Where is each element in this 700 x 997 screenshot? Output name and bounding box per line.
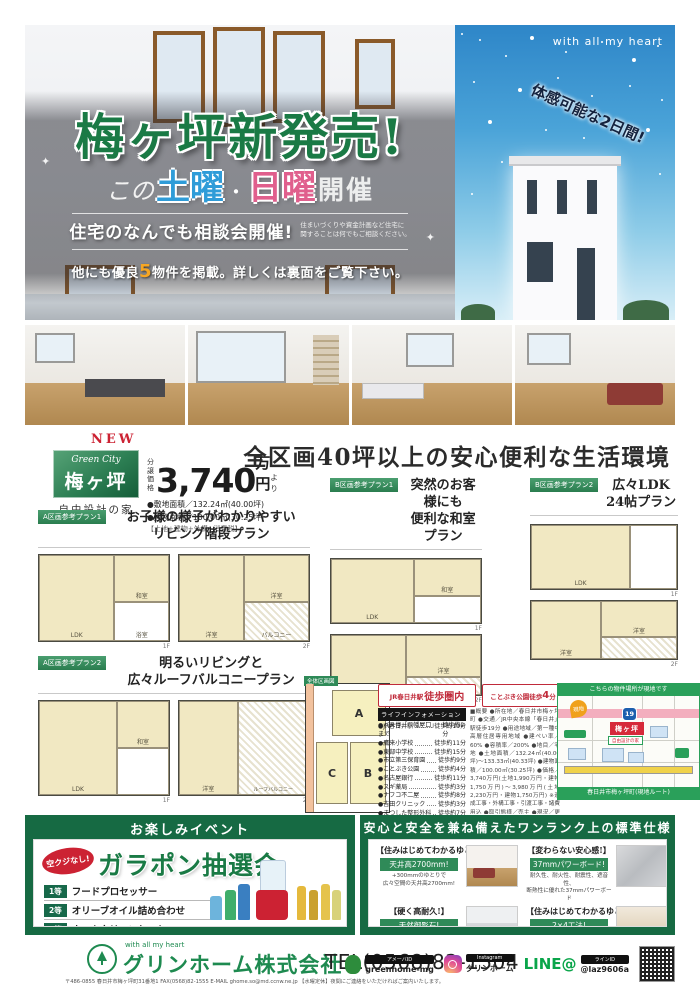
prize-rank: 2等 bbox=[44, 904, 67, 917]
station-access-badge: JR春日井駅 徒歩圏内 bbox=[378, 684, 476, 707]
floor-tag: 2F bbox=[178, 643, 310, 650]
place: ●スギ薬局 bbox=[378, 782, 407, 791]
room bbox=[414, 596, 482, 623]
section-headline: 全区画40坪以上の安心便利な生活環境 bbox=[237, 438, 677, 472]
floorplan-1f: LDK bbox=[530, 524, 678, 590]
room: LDK bbox=[39, 701, 117, 795]
spec-photo-stairs bbox=[616, 906, 667, 927]
room: 和室 bbox=[117, 701, 169, 748]
sns-row: アメーバID greenhome-mg Instagram グリンホーム LIN… bbox=[345, 946, 675, 982]
experience-days-badge: 体感可能な2日間! bbox=[528, 79, 648, 148]
event-panel: お楽しみイベント 空クジなし! ガラポン抽選会 1等 フードプロセッサー 2等 … bbox=[25, 815, 355, 935]
blender-base bbox=[256, 890, 288, 920]
park-minutes: 4 bbox=[542, 690, 549, 701]
line-id: @laz9606a bbox=[581, 965, 629, 974]
prize-item: フードプロセッサー bbox=[72, 884, 158, 898]
place: ●ナフコ不二屋 bbox=[378, 790, 419, 799]
room: LDK bbox=[531, 525, 630, 589]
spec-photo-board bbox=[616, 845, 667, 887]
hero-overlay: ✦ ✦ 梅ヶ坪新発売! この 土曜 ・ 日曜 開催 住宅のなんでも相談会開催! … bbox=[25, 91, 455, 303]
floor-tag: 1F bbox=[530, 591, 678, 598]
park-name: ことぶき公園徒歩 bbox=[490, 691, 542, 701]
instagram-icon bbox=[444, 955, 462, 973]
spec-title: 【住みはじめてわかるゆとり】 bbox=[376, 845, 462, 856]
floor-tag: 1F bbox=[38, 643, 170, 650]
house-door bbox=[577, 248, 595, 320]
road-strip bbox=[306, 684, 314, 812]
floor-wrap: 洋室 洋室 バルコニー 2F bbox=[178, 554, 310, 650]
new-label: NEW bbox=[91, 432, 136, 447]
room bbox=[630, 525, 677, 589]
spec-desc: +300mmのゆとりで 広々空間の天井高2700mm! bbox=[376, 873, 462, 888]
price-more: より bbox=[270, 472, 278, 494]
room: 洋室 bbox=[406, 635, 481, 677]
plan-tag: B区画参考プラン2 bbox=[530, 478, 598, 492]
more-properties-line: 他にも優良5物件を掲載。詳しくは裏面をご覧下さい。 bbox=[71, 261, 408, 282]
bottle-illustration bbox=[332, 890, 341, 920]
park-minutes-unit: 分 bbox=[549, 691, 556, 701]
plan-a2: A区画参考プラン2 明るいリビングと 広々ルーフバルコニープラン LDK 和室 … bbox=[38, 656, 310, 804]
photo-strip bbox=[25, 325, 675, 425]
walk-range: 徒歩圏内 bbox=[424, 688, 464, 703]
area-map: こちらの物件場所が現地です 19 現地 梅ヶ坪 自由設計の家 春日井市梅ヶ坪町(… bbox=[557, 683, 700, 800]
place: ●東部中学校 bbox=[378, 747, 413, 756]
map-block bbox=[628, 752, 644, 763]
spec-item-granite: 【硬く高耐久!】 天然御影石! 天然御影石 システムキッチン! bbox=[376, 906, 518, 927]
sofa-shape bbox=[473, 868, 495, 878]
prize-item: ホームクリーンセット bbox=[72, 922, 166, 927]
green-city-badge: Green City 梅ヶ坪 bbox=[53, 450, 139, 498]
prize-row: 2等 オリーブオイル詰め合わせ bbox=[44, 901, 222, 920]
leader bbox=[421, 797, 436, 798]
land-area: ●敷地面積／132.24㎡(40.00坪) bbox=[147, 499, 272, 510]
spec-title: 【硬く高耐久!】 bbox=[376, 906, 462, 917]
window-shape bbox=[527, 333, 571, 365]
room: 洋室 bbox=[244, 555, 309, 602]
property-overview: ■概要 ●所在地／春日井市梅ヶ坪町 ●交通／JR中央本線「春日井」駅徒歩19分 … bbox=[470, 708, 560, 814]
line-info: ラインID @laz9606a bbox=[581, 955, 629, 974]
site-label: 梅ヶ坪 bbox=[610, 722, 644, 735]
footer: with all my heart グリンホーム株式会社 TEL(0568)82… bbox=[25, 940, 675, 992]
lot-c: C bbox=[316, 742, 348, 804]
spec-item-2x4: 【住みはじめてわかるゆとり】 2×4工法! 火災、地震に強い 2×4工法! bbox=[526, 906, 667, 927]
leader bbox=[427, 805, 436, 806]
plan-caption-line1: お子様の様子がわかりやすい bbox=[127, 510, 296, 525]
map-block bbox=[650, 726, 668, 738]
list-item: ●市立第三保育園徒歩約9分 bbox=[378, 756, 466, 765]
spec-item-ceiling: 【住みはじめてわかるゆとり】 天井高2700mm! +300mmのゆとりで 広々… bbox=[376, 845, 518, 903]
room: 洋室 bbox=[179, 701, 238, 795]
time: 徒歩約8分 bbox=[438, 790, 466, 799]
spec-item-powerboard: 【変わらない安心感!】 37mmパワーボード! 耐久性、耐火性、耐震性、遮音性、… bbox=[526, 845, 667, 903]
footer-tagline: with all my heart bbox=[125, 941, 184, 949]
floor-wrap: LDK 和室 浴室 1F bbox=[38, 554, 170, 650]
window-shape bbox=[196, 331, 286, 383]
place: ●名古屋銀行 bbox=[378, 773, 413, 782]
hero-subtitle: この 土曜 ・ 日曜 開催 bbox=[106, 170, 374, 207]
plan-caption: お子様の様子がわかりやすい リビング階段プラン bbox=[112, 510, 310, 544]
station-name: JR春日井駅 bbox=[390, 691, 423, 701]
room: LDK bbox=[39, 555, 114, 641]
hero-sky-photo: with all my heart 体感可能な2日間! bbox=[455, 25, 675, 320]
prize-list: 1等 フードプロセッサー 2等 オリーブオイル詰め合わせ 3等 ホームクリーンセ… bbox=[44, 882, 222, 927]
plan-a2-header: A区画参考プラン2 明るいリビングと 広々ルーフバルコニープラン bbox=[38, 656, 310, 694]
flyer-page: with all my heart 体感可能な2日間! ✦ ✦ 梅ヶ坪新発売! … bbox=[0, 0, 700, 997]
bottle-illustration bbox=[210, 896, 222, 920]
main-road bbox=[564, 766, 693, 774]
badge-name: 梅ヶ坪 bbox=[53, 467, 139, 494]
time: 徒歩約11分 bbox=[434, 738, 466, 747]
floor-tag: 2F bbox=[178, 797, 310, 804]
house-window bbox=[557, 180, 567, 214]
list-item: ●スギ薬局徒歩約3分 bbox=[378, 782, 466, 791]
leader bbox=[427, 762, 436, 763]
consult-note-line2: 関することは何でもご相談ください。 bbox=[300, 230, 411, 238]
instagram-block: Instagram グリンホーム bbox=[444, 954, 514, 974]
sparkle-icon: ✦ bbox=[426, 231, 435, 244]
room: バルコニー bbox=[244, 602, 309, 641]
map-landmark bbox=[675, 748, 689, 758]
map-block bbox=[568, 748, 586, 760]
divider bbox=[72, 213, 407, 214]
spec-feature-bar: 天井高2700mm! bbox=[380, 858, 458, 871]
time: 徒歩約2分 bbox=[442, 720, 466, 738]
plan-caption-line2: 24帖プラン bbox=[606, 495, 676, 510]
plan-caption: 広々LDK 24帖プラン bbox=[604, 478, 678, 512]
plan-b2: B区画参考プラン2 広々LDK 24帖プラン LDK 1F 洋室 洋室 2F bbox=[530, 478, 678, 668]
ameba-icon bbox=[345, 955, 361, 974]
prize-row: 1等 フードプロセッサー bbox=[44, 882, 222, 901]
plan-a1-drawings: LDK 和室 浴室 1F 洋室 洋室 バルコニー 2F bbox=[38, 554, 310, 650]
ameba-info: アメーバID greenhome-mg bbox=[365, 955, 434, 974]
life-info-title: ライフインフォメーション bbox=[378, 708, 466, 721]
hero-title: 梅ヶ坪新発売! bbox=[75, 113, 405, 162]
counter-shape bbox=[85, 379, 165, 397]
price-label-1: 分譲 bbox=[147, 458, 154, 474]
bush-shape bbox=[623, 300, 669, 320]
company-name: グリンホーム株式会社 bbox=[123, 949, 342, 979]
room: LDK bbox=[331, 559, 414, 623]
plan-caption-line2: 便利な和室プラン bbox=[411, 512, 476, 544]
life-information: ライフインフォメーション ●JR春日井駅徒歩約19分 ●バス停「八幡屋口」まで徒… bbox=[378, 708, 466, 817]
floor-wrap: 洋室 ルーフバルコニー 2F bbox=[178, 700, 310, 804]
time: 徒歩約3分 bbox=[438, 799, 466, 808]
map-body: 19 現地 梅ヶ坪 自由設計の家 bbox=[558, 696, 699, 787]
house-roof bbox=[509, 156, 621, 166]
place: ●市立第三保育園 bbox=[378, 755, 425, 764]
photo-living-stairs bbox=[188, 325, 348, 425]
floor-tag: 1F bbox=[38, 797, 170, 804]
time: 徒歩約15分 bbox=[434, 747, 466, 756]
floorplan-1f: LDK 和室 bbox=[330, 558, 482, 624]
blender-illustration bbox=[256, 860, 288, 920]
instagram-badge: Instagram bbox=[466, 954, 514, 962]
place: ●鷹来小学校 bbox=[378, 738, 413, 747]
list-item: ●バス停「八幡屋口」まで徒歩約2分 bbox=[378, 730, 466, 739]
company-logo-icon bbox=[87, 944, 117, 974]
leader bbox=[415, 753, 432, 754]
house-window bbox=[527, 180, 537, 214]
room: 洋室 bbox=[179, 555, 244, 641]
plan-caption: 突然のお客様にも 便利な和室プラン bbox=[404, 478, 482, 546]
room: ルーフバルコニー bbox=[238, 701, 310, 795]
window-shape bbox=[406, 333, 454, 367]
spec-title: 【住みはじめてわかるゆとり】 bbox=[526, 906, 612, 917]
subtitle-suffix: 開催 bbox=[318, 170, 374, 207]
prize-row: 3等 ホームクリーンセット bbox=[44, 920, 222, 927]
spec-text: 【硬く高耐久!】 天然御影石! 天然御影石 システムキッチン! bbox=[376, 906, 462, 927]
time: 徒歩約9分 bbox=[438, 755, 466, 764]
model-house bbox=[513, 162, 617, 320]
stairs-shape bbox=[313, 335, 339, 385]
leader bbox=[409, 788, 436, 789]
room: 和室 bbox=[114, 555, 169, 602]
bottle-illustration bbox=[238, 884, 250, 920]
spec-photo-living bbox=[466, 845, 518, 887]
spec-feature-bar: 天然御影石! bbox=[380, 919, 458, 927]
list-item: ●吉田クリニック徒歩約3分 bbox=[378, 799, 466, 808]
brand-tagline: with all my heart bbox=[553, 35, 663, 48]
line-logo: LINE@ bbox=[524, 955, 577, 973]
floor-wrap: LDK 和室 1F bbox=[38, 700, 170, 804]
consult-title: 住宅のなんでも相談会開催! bbox=[69, 218, 293, 243]
ameba-id: greenhome-mg bbox=[365, 965, 434, 974]
house-window bbox=[587, 180, 597, 214]
specs-box: 【住みはじめてわかるゆとり】 天井高2700mm! +300mmのゆとりで 広々… bbox=[368, 839, 667, 927]
map-header: こちらの物件場所が現地です bbox=[558, 684, 699, 696]
more-pre: 他にも優良 bbox=[71, 266, 139, 281]
house-window bbox=[527, 242, 553, 282]
plan-b1-header: B区画参考プラン1 突然のお客様にも 便利な和室プラン bbox=[330, 478, 482, 550]
plan-tag: A区画参考プラン2 bbox=[38, 656, 106, 670]
specs-panel: 安心と安全を兼ね備えたワンランク上の標準仕様 【住みはじめてわかるゆとり】 天井… bbox=[360, 815, 675, 935]
route-shield-icon: 19 bbox=[622, 707, 637, 721]
room: 洋室 bbox=[601, 601, 677, 637]
spec-desc: 耐久性、耐火性、耐震性、遮音性、 断熱性に優れた37mmパワーボード bbox=[526, 873, 612, 903]
no-blank-badge: 空クジなし! bbox=[40, 845, 95, 878]
line-block: LINE@ ラインID @laz9606a bbox=[524, 955, 629, 974]
spec-desc-line1: 耐久性、耐火性、耐震性、遮音性、 bbox=[530, 873, 608, 887]
prize-item: オリーブオイル詰め合わせ bbox=[72, 903, 185, 917]
prize-rank: 1等 bbox=[44, 885, 67, 898]
floorplan-2f: 洋室 ルーフバルコニー bbox=[178, 700, 310, 796]
badge-top: Green City bbox=[53, 455, 139, 465]
consult-row: 住宅のなんでも相談会開催! 住まいづくりや資金計画など住宅に 関することは何でも… bbox=[69, 218, 410, 243]
plan-caption-line1: 明るいリビングと bbox=[159, 656, 263, 671]
tree-trunk bbox=[101, 960, 103, 965]
floor-tag: 1F bbox=[330, 625, 482, 632]
subtitle-prefix: この bbox=[106, 171, 154, 206]
room: 浴室 bbox=[114, 602, 169, 641]
place: ●ことぶき公園 bbox=[378, 764, 419, 773]
plan-b2-header: B区画参考プラン2 広々LDK 24帖プラン bbox=[530, 478, 678, 516]
plan-a1: A区画参考プラン1 お子様の様子がわかりやすい リビング階段プラン LDK 和室… bbox=[38, 510, 310, 650]
ameba-badge: アメーバID bbox=[365, 955, 434, 964]
more-count: 5 bbox=[139, 261, 152, 282]
map-block bbox=[602, 748, 624, 762]
spec-desc-line1: +300mmのゆとりで bbox=[392, 873, 446, 879]
floorplan-1f: LDK 和室 bbox=[38, 700, 170, 796]
park-access-badge: ことぶき公園徒歩 4 分 bbox=[482, 684, 564, 707]
divider bbox=[72, 249, 407, 250]
sofa-shape bbox=[607, 383, 663, 405]
bush-shape bbox=[461, 304, 495, 320]
spec-title: 【変わらない安心感!】 bbox=[526, 845, 612, 856]
spec-text: 【住みはじめてわかるゆとり】 2×4工法! 火災、地震に強い 2×4工法! bbox=[526, 906, 612, 927]
saturday-label: 土曜 bbox=[156, 171, 224, 205]
list-item: ●鷹来小学校徒歩約11分 bbox=[378, 738, 466, 747]
list-item: ●東部中学校徒歩約15分 bbox=[378, 747, 466, 756]
dot-separator: ・ bbox=[226, 176, 246, 205]
line-badge: ラインID bbox=[581, 955, 629, 964]
leader bbox=[415, 779, 432, 780]
list-item: ●ことぶき公園徒歩約4分 bbox=[378, 764, 466, 773]
hero-section: with all my heart 体感可能な2日間! ✦ ✦ 梅ヶ坪新発売! … bbox=[25, 25, 675, 320]
time: 徒歩約3分 bbox=[438, 782, 466, 791]
plan-caption: 明るいリビングと 広々ルーフバルコニープラン bbox=[112, 656, 310, 690]
photo-living-counter bbox=[352, 325, 512, 425]
plan-caption-line2: リビング階段プラン bbox=[153, 527, 270, 542]
floorplan-2f: 洋室 洋室 バルコニー bbox=[178, 554, 310, 642]
time: 徒歩約4分 bbox=[438, 764, 466, 773]
sparkle-icon: ✦ bbox=[41, 155, 50, 168]
spec-desc-line2: 広々空間の天井高2700mm! bbox=[383, 881, 455, 887]
more-post: 物件を掲載。詳しくは裏面をご覧下さい。 bbox=[152, 266, 409, 281]
room bbox=[601, 637, 677, 659]
bottle-illustration bbox=[321, 884, 330, 920]
spec-feature-bar: 2×4工法! bbox=[530, 919, 608, 927]
plan-tag: A区画参考プラン1 bbox=[38, 510, 106, 524]
bottle-illustration bbox=[297, 886, 306, 920]
window-shape bbox=[35, 333, 75, 363]
room bbox=[117, 748, 169, 795]
time: 徒歩約11分 bbox=[434, 773, 466, 782]
prize-rank: 3等 bbox=[44, 923, 67, 928]
event-box: 空クジなし! ガラポン抽選会 1等 フードプロセッサー 2等 オリーブオイル詰め… bbox=[33, 839, 347, 927]
price-label: 分譲 価格 bbox=[147, 458, 154, 492]
floorplan-1f: LDK 和室 浴室 bbox=[38, 554, 170, 642]
spec-text: 【住みはじめてわかるゆとり】 天井高2700mm! +300mmのゆとりで 広々… bbox=[376, 845, 462, 888]
spec-desc-line2: 断熱性に優れた37mmパワーボード bbox=[526, 888, 611, 902]
consult-note-line1: 住まいづくりや資金計画など住宅に bbox=[300, 221, 404, 229]
plan-a2-drawings: LDK 和室 1F 洋室 ルーフバルコニー 2F bbox=[38, 700, 310, 804]
blender-jar bbox=[260, 860, 286, 892]
specs-header: 安心と安全を兼ね備えたワンランク上の標準仕様 bbox=[360, 819, 675, 836]
plan-a1-header: A区画参考プラン1 お子様の様子がわかりやすい リビング階段プラン bbox=[38, 510, 310, 548]
bottle-illustration bbox=[309, 890, 318, 920]
photo-living-sofa bbox=[515, 325, 675, 425]
floorplan-2f: 洋室 洋室 bbox=[530, 600, 678, 660]
place: ●吉田クリニック bbox=[378, 799, 425, 808]
place: ●バス停「八幡屋口」まで bbox=[378, 720, 438, 738]
instagram-info: Instagram グリンホーム bbox=[466, 954, 514, 974]
price-label-2: 価格 bbox=[147, 475, 154, 491]
spec-grid: 【住みはじめてわかるゆとり】 天井高2700mm! +300mmのゆとりで 広々… bbox=[369, 840, 666, 927]
spec-feature-bar: 37mmパワーボード! bbox=[530, 858, 608, 871]
leader bbox=[415, 745, 432, 746]
spec-text: 【変わらない安心感!】 37mmパワーボード! 耐久性、耐火性、耐震性、遮音性、… bbox=[526, 845, 612, 903]
instagram-id: グリンホーム bbox=[466, 963, 514, 974]
sunday-label: 日曜 bbox=[248, 171, 316, 205]
photo-kitchen bbox=[25, 325, 185, 425]
plan-caption-line1: 広々LDK bbox=[612, 478, 670, 493]
stars-decoration bbox=[461, 33, 463, 35]
plan-caption-line2: 広々ルーフバルコニープラン bbox=[128, 673, 295, 688]
map-landmark bbox=[564, 730, 586, 738]
plan-caption-line1: 突然のお客様にも bbox=[411, 478, 476, 510]
consult-note: 住まいづくりや資金計画など住宅に 関することは何でもご相談ください。 bbox=[300, 221, 411, 240]
counter-shape bbox=[362, 383, 424, 399]
room: 和室 bbox=[414, 559, 482, 596]
floor-tag: 2F bbox=[530, 661, 678, 668]
plan-tag: B区画参考プラン1 bbox=[330, 478, 398, 492]
event-title: ガラポン抽選会 bbox=[98, 846, 280, 882]
site-sublabel: 自由設計の家 bbox=[608, 736, 643, 745]
list-item: ●ナフコ不二屋徒歩約8分 bbox=[378, 791, 466, 800]
ameba-block: アメーバID greenhome-mg bbox=[345, 955, 434, 974]
leader bbox=[421, 771, 436, 772]
event-header: お楽しみイベント bbox=[25, 819, 355, 838]
qr-code bbox=[639, 946, 675, 982]
map-footer: 春日井市梅ヶ坪町(現地ルート) bbox=[558, 787, 699, 799]
room: 洋室 bbox=[531, 601, 601, 659]
list-item: ●名古屋銀行徒歩約11分 bbox=[378, 773, 466, 782]
bottle-illustration bbox=[225, 890, 236, 920]
plan-b1: B区画参考プラン1 突然のお客様にも 便利な和室プラン LDK 和室 1F 洋室… bbox=[330, 478, 482, 704]
spec-photo-kitchen bbox=[466, 906, 518, 927]
